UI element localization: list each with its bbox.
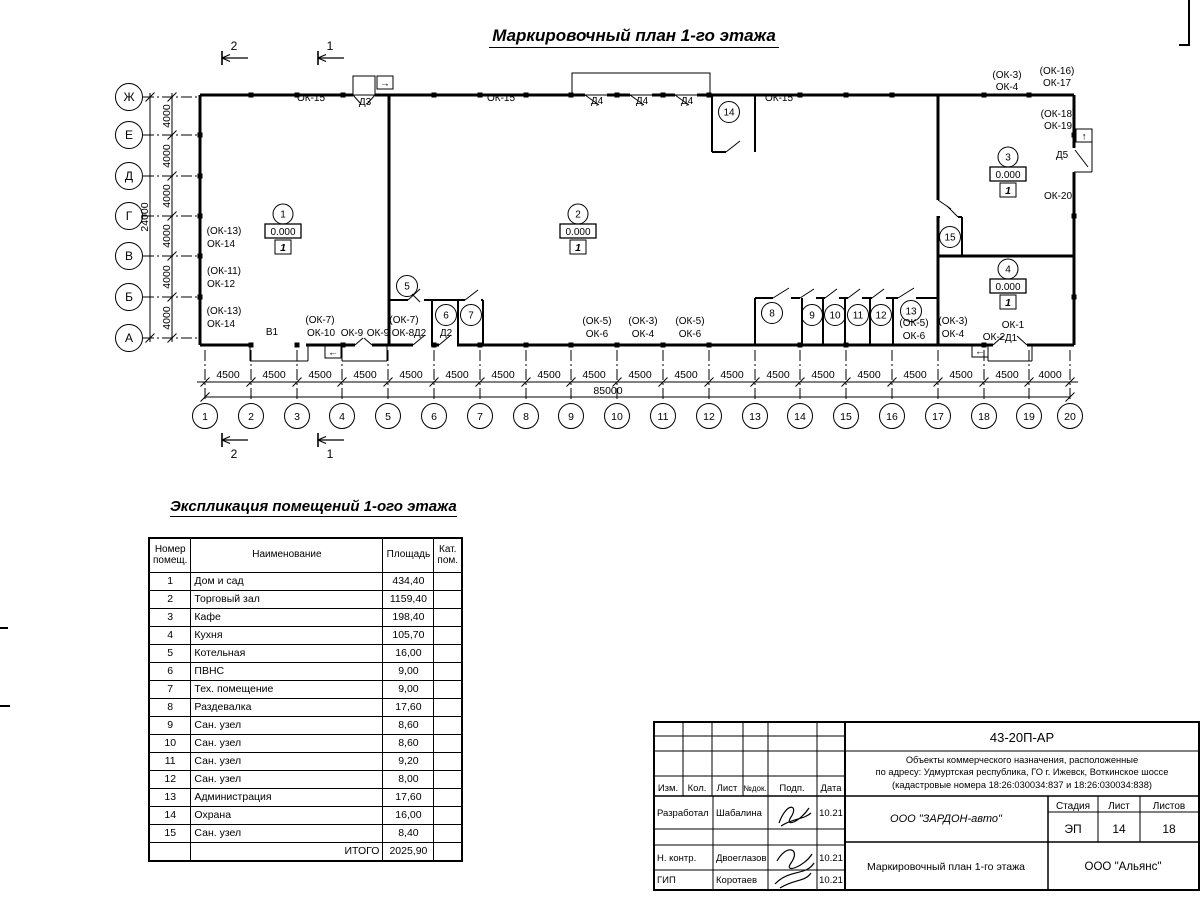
room-name-cell: Раздевалка (191, 699, 383, 717)
room-name-cell: Торговый зал (191, 591, 383, 609)
axis-number: 14 (794, 411, 806, 423)
window-door-label: (ОК-7) (389, 315, 418, 326)
hdr-izm: Изм. (658, 783, 678, 794)
dimension-label: 4500 (582, 369, 606, 381)
window-door-label: ОК-14 (207, 239, 235, 250)
room-number: 15 (944, 233, 956, 244)
elevation-value: 0.000 (995, 170, 1020, 181)
wall-pier (798, 93, 803, 98)
room-name-cell: ПВНС (191, 663, 383, 681)
sheet-value: 14 (1112, 822, 1126, 836)
door-detail (825, 289, 837, 298)
project-line-2: по адресу: Удмуртская республика, ГО г. … (876, 767, 1169, 777)
elevation-value: 0.000 (565, 227, 590, 238)
axis-number: 8 (523, 411, 529, 423)
room-number-cell: 2 (149, 591, 191, 609)
table-row: 3Кафе198,40 (149, 609, 462, 627)
axis-number: 7 (477, 411, 483, 423)
window-door-label: ОК-4 (942, 329, 965, 340)
vestibule-outline (353, 76, 375, 95)
dimension-label: 4000 (161, 104, 173, 128)
room-area-cell: 8,60 (383, 717, 434, 735)
wall-pier (432, 93, 437, 98)
table-row: 15Сан. узел8,40 (149, 825, 462, 843)
window-door-label: Д2 (440, 328, 453, 339)
room-category-cell (434, 789, 462, 807)
room-category-cell (434, 573, 462, 591)
door-detail (898, 288, 914, 298)
hdr-list: Лист (717, 783, 738, 794)
window-door-label: (ОК-5) (899, 318, 928, 329)
window-door-label: Д4 (591, 96, 604, 107)
window-door-label: Д1 (1005, 333, 1018, 344)
room-category-cell (434, 591, 462, 609)
frame-mark-left-1 (0, 627, 8, 629)
total-empty-cell (149, 843, 191, 862)
section-mark-label: 2 (231, 39, 238, 53)
door-detail (1017, 336, 1027, 345)
room-number-cell: 5 (149, 645, 191, 663)
room-number-cell: 15 (149, 825, 191, 843)
floor-number: 1 (1005, 185, 1011, 197)
axis-number: 19 (1023, 411, 1035, 423)
wall-pier (1072, 295, 1077, 300)
window-door-label: (ОК-13) (207, 226, 242, 237)
window-door-label: Д5 (1056, 150, 1069, 161)
exit-arrow-icon: ← (975, 347, 985, 358)
wall-pier (198, 214, 203, 219)
table-row: 1Дом и сад434,40 (149, 573, 462, 591)
table-row: 14Охрана16,00 (149, 807, 462, 825)
window-door-label: ОК-8 (392, 328, 415, 339)
room-area-cell: 9,00 (383, 663, 434, 681)
room-number: 3 (1005, 153, 1011, 164)
window-door-label: (ОК-13) (207, 306, 242, 317)
door-detail (726, 141, 740, 152)
window-door-label: (ОК-3) (938, 316, 967, 327)
door-detail (773, 288, 789, 298)
window-door-label: ОК-15 (487, 93, 515, 104)
table-row: 2Торговый зал1159,40 (149, 591, 462, 609)
role-gip: ГИП (657, 875, 676, 886)
hdr-kol: Кол. (688, 783, 707, 794)
axis-number: 4 (339, 411, 345, 423)
room-category-cell (434, 609, 462, 627)
dimension-label: 4500 (399, 369, 423, 381)
section-mark-label: 2 (231, 447, 238, 461)
name-gip: Коротаев (716, 875, 757, 886)
door-detail (1075, 150, 1088, 167)
dimension-label: 4500 (995, 369, 1019, 381)
wall-pier (478, 93, 483, 98)
room-number-cell: 11 (149, 753, 191, 771)
drawing-title: Маркировочный план 1-го этажа (867, 861, 1025, 873)
wall-pier (432, 343, 437, 348)
wall-pier (478, 343, 483, 348)
room-name-cell: Сан. узел (191, 825, 383, 843)
table-row: 4Кухня105,70 (149, 627, 462, 645)
room-category-cell (434, 717, 462, 735)
wall-pier (198, 254, 203, 259)
room-number: 12 (875, 311, 887, 322)
axis-letter: Г (126, 209, 133, 223)
dimension-label: 4000 (161, 224, 173, 248)
room-name-cell: Кухня (191, 627, 383, 645)
window-door-label: (ОК-7) (305, 315, 334, 326)
door-detail (355, 338, 363, 345)
window-door-label: ОК-6 (903, 331, 926, 342)
dimension-label: 4500 (537, 369, 561, 381)
room-number: 1 (280, 210, 286, 221)
col-header-area: Площадь (383, 538, 434, 573)
room-number-cell: 4 (149, 627, 191, 645)
door-detail (408, 289, 420, 300)
room-number: 4 (1005, 265, 1011, 276)
sheet-label: Лист (1108, 801, 1130, 812)
axis-number: 1 (202, 411, 208, 423)
room-area-cell: 8,60 (383, 735, 434, 753)
sheets-label: Листов (1153, 801, 1186, 812)
section-mark-label: 1 (327, 39, 334, 53)
door-detail (412, 294, 420, 302)
section-mark-label: 1 (327, 447, 334, 461)
wall-pier (982, 93, 987, 98)
axis-letter: А (125, 331, 133, 345)
room-category-cell (434, 663, 462, 681)
explication-table: Номер помещ. Наименование Площадь Кат. п… (148, 537, 463, 862)
window-door-label: (ОК-11) (207, 266, 241, 277)
room-area-cell: 8,40 (383, 825, 434, 843)
dimension-label: 4500 (445, 369, 469, 381)
canopy-outline (572, 73, 710, 95)
room-number: 7 (468, 311, 474, 322)
axis-number: 18 (978, 411, 990, 423)
dimension-label: 4500 (674, 369, 698, 381)
table-row: 11Сан. узел9,20 (149, 753, 462, 771)
hdr-podp: Подп. (779, 783, 804, 794)
wall-pier (844, 93, 849, 98)
wall-pier (1027, 93, 1032, 98)
wall-pier (524, 93, 529, 98)
dimension-label: 4500 (949, 369, 973, 381)
room-number: 5 (404, 282, 410, 293)
wall-pier (1072, 214, 1077, 219)
table-row: 12Сан. узел8,00 (149, 771, 462, 789)
room-area-cell: 1159,40 (383, 591, 434, 609)
axis-number: 3 (294, 411, 300, 423)
wall-pier (198, 174, 203, 179)
total-value-cell: 2025,90 (383, 843, 434, 862)
room-number-cell: 14 (149, 807, 191, 825)
window-door-label: Д2 (414, 328, 427, 339)
axis-number: 20 (1064, 411, 1076, 423)
axis-number: 17 (932, 411, 944, 423)
wall-pier (295, 343, 300, 348)
window-door-label: ОК-1 (1002, 320, 1025, 331)
window-door-label: (ОК-3) (628, 316, 657, 327)
room-area-cell: 17,60 (383, 789, 434, 807)
date-ncontrol: 10.21 (819, 853, 843, 864)
wall-pier (198, 295, 203, 300)
window-door-label: ОК-4 (632, 329, 655, 340)
wall-pier (844, 343, 849, 348)
frame-mark-left-2 (0, 705, 10, 707)
dimension-label: 4500 (491, 369, 515, 381)
table-row: 6ПВНС9,00 (149, 663, 462, 681)
dimension-label: 24000 (139, 202, 151, 231)
window-door-label: ОК-15 (297, 93, 325, 104)
room-area-cell: 16,00 (383, 807, 434, 825)
dimension-label: 4500 (216, 369, 240, 381)
elevation-value: 0.000 (995, 282, 1020, 293)
axis-number: 5 (385, 411, 391, 423)
room-area-cell: 105,70 (383, 627, 434, 645)
col-header-name: Наименование (191, 538, 383, 573)
floor-plan-drawing: ЖЕДГВБА400040004000400040004000240001234… (0, 0, 1200, 480)
wall-pier (198, 133, 203, 138)
room-number: 6 (443, 311, 449, 322)
room-name-cell: Дом и сад (191, 573, 383, 591)
table-row: 10Сан. узел8,60 (149, 735, 462, 753)
signature-icon (779, 807, 811, 826)
dimension-label: 4500 (903, 369, 927, 381)
wall-pier (249, 93, 254, 98)
name-developer: Шабалина (716, 808, 763, 819)
axis-number: 9 (568, 411, 574, 423)
room-area-cell: 8,00 (383, 771, 434, 789)
window-door-label: ОК-14 (207, 319, 235, 330)
window-door-label: ОК-6 (586, 329, 609, 340)
wall-pier (341, 93, 346, 98)
doc-number: 43-20П-АР (990, 730, 1054, 745)
window-door-label: ОК-9 (367, 328, 390, 339)
window-door-label: ОК-12 (207, 279, 235, 290)
axis-number: 6 (431, 411, 437, 423)
project-line-3: (кадастровые номера 18:26:030034:837 и 1… (892, 780, 1152, 790)
floor-number: 1 (1005, 297, 1011, 309)
exit-arrow-icon: ↑ (1082, 132, 1087, 143)
table-row: 13Администрация17,60 (149, 789, 462, 807)
project-line-1: Объекты коммерческого назначения, распол… (906, 755, 1138, 765)
dimension-label: 4000 (161, 144, 173, 168)
date-developer: 10.21 (819, 808, 843, 819)
wall-pier (798, 343, 803, 348)
room-category-cell (434, 735, 462, 753)
date-gip: 10.21 (819, 875, 843, 886)
exit-arrow-icon: → (380, 79, 390, 90)
window-door-label: (ОК-5) (582, 316, 611, 327)
door-detail (848, 289, 860, 298)
window-door-label: (ОК-16) (1040, 66, 1075, 77)
role-ncontrol: Н. контр. (657, 853, 696, 864)
axis-number: 11 (658, 411, 669, 423)
role-developer: Разработал (657, 808, 709, 819)
name-ncontrol: Двоеглазов (716, 853, 767, 864)
table-row: 8Раздевалка17,60 (149, 699, 462, 717)
room-number-cell: 8 (149, 699, 191, 717)
room-name-cell: Сан. узел (191, 717, 383, 735)
wall-pier (524, 343, 529, 348)
dimension-label: 4500 (308, 369, 332, 381)
wall-pier (615, 343, 620, 348)
room-category-cell (434, 807, 462, 825)
stage-label: Стадия (1056, 801, 1090, 812)
total-row: ИТОГО2025,90 (149, 843, 462, 862)
window-door-label: ОК-20 (1044, 191, 1072, 202)
floor-number: 1 (575, 242, 581, 254)
axis-number: 10 (611, 411, 623, 423)
wall-pier (890, 93, 895, 98)
door-detail (872, 289, 884, 298)
wall-pier (707, 343, 712, 348)
title-block: 43-20П-АР Объекты коммерческого назначен… (653, 721, 1200, 892)
window-door-label: ОК-10 (307, 328, 335, 339)
dimension-label: 4500 (353, 369, 377, 381)
floor-number: 1 (280, 242, 286, 254)
window-door-label: ОК-19 (1044, 121, 1072, 132)
axis-number: 13 (749, 411, 761, 423)
room-name-cell: Сан. узел (191, 753, 383, 771)
signature-icon (775, 850, 814, 888)
room-name-cell: Котельная (191, 645, 383, 663)
total-label-cell: ИТОГО (191, 843, 383, 862)
dimension-label: 4500 (811, 369, 835, 381)
axis-letter: Д (125, 169, 133, 183)
col-header-room-number: Номер помещ. (149, 538, 191, 573)
window-door-label: (ОК-5) (675, 316, 704, 327)
room-area-cell: 434,40 (383, 573, 434, 591)
dimension-label: 4000 (161, 184, 173, 208)
room-number-cell: 13 (149, 789, 191, 807)
door-detail (465, 290, 478, 300)
room-area-cell: 9,00 (383, 681, 434, 699)
axis-letter: Е (125, 128, 133, 142)
col-header-category: Кат. пом. (434, 538, 462, 573)
door-detail (800, 289, 814, 298)
axis-letter: В (125, 249, 133, 263)
dimension-label: 4500 (857, 369, 881, 381)
room-number: 9 (809, 311, 815, 322)
room-number-cell: 7 (149, 681, 191, 699)
room-number: 11 (853, 311, 864, 322)
elevation-value: 0.000 (270, 227, 295, 238)
room-number: 14 (723, 108, 735, 119)
window-door-label: ОК-15 (765, 93, 793, 104)
dimension-label: 4500 (766, 369, 790, 381)
explication-title: Экспликация помещений 1-ого этажа (170, 498, 457, 517)
explication-header-row: Номер помещ. Наименование Площадь Кат. п… (149, 538, 462, 573)
window-door-label: ОК-17 (1043, 78, 1071, 89)
window-door-label: (ОК-18) (1041, 109, 1076, 120)
wall-pier (249, 343, 254, 348)
wall-pier (569, 343, 574, 348)
design-company: ООО "ЗАРДОН-авто" (890, 813, 1003, 825)
table-row: 7Тех. помещение9,00 (149, 681, 462, 699)
room-number-cell: 6 (149, 663, 191, 681)
room-number: 10 (829, 311, 841, 322)
room-name-cell: Кафе (191, 609, 383, 627)
window-door-label: ОК-9 (341, 328, 364, 339)
room-category-cell (434, 681, 462, 699)
axis-number: 15 (840, 411, 852, 423)
room-name-cell: Сан. узел (191, 735, 383, 753)
room-area-cell: 198,40 (383, 609, 434, 627)
window-door-label: ОК-2 (983, 332, 1006, 343)
contractor: ООО "Альянс" (1085, 861, 1162, 873)
window-door-label: Д4 (681, 96, 694, 107)
room-number: 2 (575, 210, 581, 221)
sheets-value: 18 (1162, 822, 1176, 836)
room-area-cell: 16,00 (383, 645, 434, 663)
room-category-cell (434, 627, 462, 645)
door-detail (364, 338, 372, 345)
window-door-label: ОК-4 (996, 82, 1019, 93)
room-area-cell: 17,60 (383, 699, 434, 717)
exit-arrow-icon: ← (328, 348, 338, 359)
total-category-cell (434, 843, 462, 862)
window-door-label: (ОК-3) (992, 70, 1021, 81)
window-door-label: Д4 (636, 96, 649, 107)
dimension-label: 4000 (1038, 369, 1062, 381)
room-category-cell (434, 825, 462, 843)
dimension-label: 4500 (720, 369, 744, 381)
dimension-label: 4500 (628, 369, 652, 381)
table-row: 9Сан. узел8,60 (149, 717, 462, 735)
window-door-label: ОК-6 (679, 329, 702, 340)
room-area-cell: 9,20 (383, 753, 434, 771)
dimension-label: 85000 (593, 385, 622, 397)
room-name-cell: Администрация (191, 789, 383, 807)
room-number-cell: 1 (149, 573, 191, 591)
axis-number: 12 (703, 411, 715, 423)
room-name-cell: Охрана (191, 807, 383, 825)
window-door-label: Д3 (359, 97, 372, 108)
stage-value: ЭП (1064, 822, 1081, 836)
axis-number: 2 (248, 411, 254, 423)
room-number-cell: 12 (149, 771, 191, 789)
room-name-cell: Сан. узел (191, 771, 383, 789)
room-category-cell (434, 699, 462, 717)
axis-letter: Ж (123, 90, 134, 104)
hdr-data: Дата (820, 783, 842, 794)
room-name-cell: Тех. помещение (191, 681, 383, 699)
table-row: 5Котельная16,00 (149, 645, 462, 663)
room-category-cell (434, 753, 462, 771)
door-detail (947, 206, 958, 217)
room-number-cell: 10 (149, 735, 191, 753)
hdr-ndok: №док. (743, 784, 766, 793)
axis-letter: Б (125, 290, 133, 304)
room-number-cell: 9 (149, 717, 191, 735)
dimension-label: 4500 (262, 369, 286, 381)
room-category-cell (434, 645, 462, 663)
axis-number: 16 (886, 411, 898, 423)
window-door-label: В1 (266, 327, 279, 338)
room-category-cell (434, 771, 462, 789)
room-number-cell: 3 (149, 609, 191, 627)
dimension-label: 4000 (161, 306, 173, 330)
wall-pier (661, 343, 666, 348)
dimension-label: 4000 (161, 265, 173, 289)
room-number: 8 (769, 309, 775, 320)
room-number: 13 (905, 307, 917, 318)
